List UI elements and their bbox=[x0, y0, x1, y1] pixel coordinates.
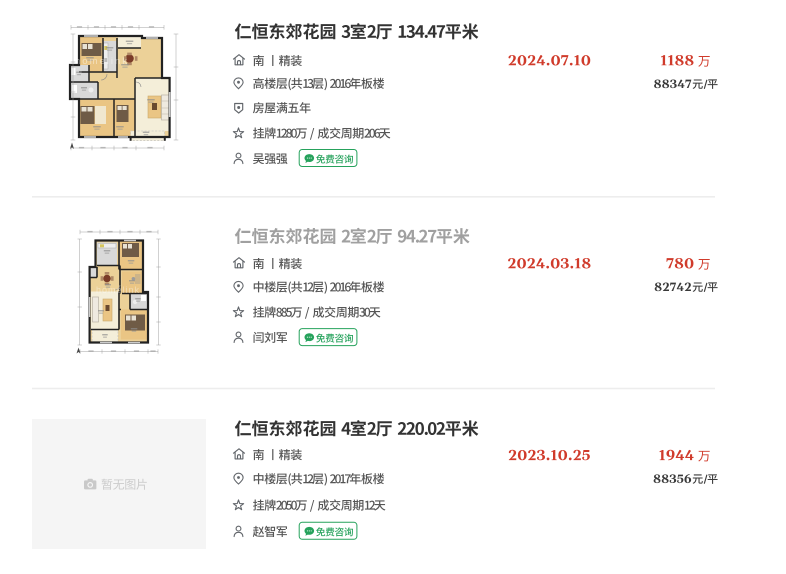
svg-text:homelink: homelink bbox=[75, 56, 129, 67]
svg-text:homelink: homelink bbox=[96, 285, 140, 295]
